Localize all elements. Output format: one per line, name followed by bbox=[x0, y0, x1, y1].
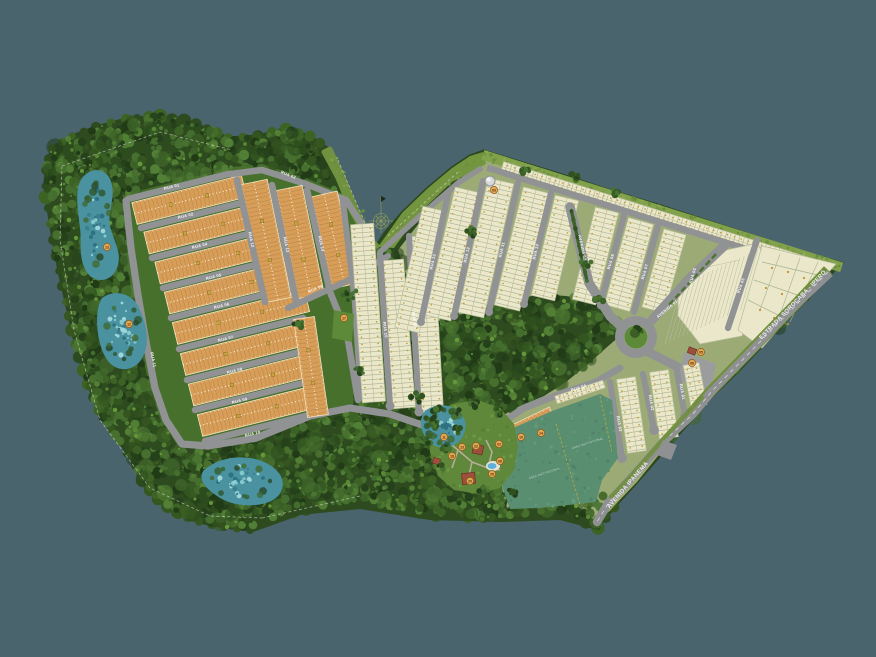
svg-text:18: 18 bbox=[450, 454, 454, 458]
svg-text:11: 11 bbox=[442, 435, 446, 439]
svg-text:20: 20 bbox=[468, 479, 472, 483]
svg-text:10: 10 bbox=[519, 435, 523, 439]
svg-text:13: 13 bbox=[460, 445, 464, 449]
svg-text:13: 13 bbox=[105, 245, 109, 249]
svg-text:14: 14 bbox=[539, 431, 543, 435]
svg-text:08: 08 bbox=[690, 361, 694, 365]
svg-text:08: 08 bbox=[498, 459, 502, 463]
svg-text:25: 25 bbox=[490, 472, 494, 476]
svg-text:12: 12 bbox=[127, 322, 131, 326]
svg-text:03: 03 bbox=[492, 188, 496, 192]
svg-text:05: 05 bbox=[699, 350, 703, 354]
svg-text:02: 02 bbox=[497, 442, 501, 446]
svg-text:22: 22 bbox=[474, 444, 478, 448]
svg-text:17: 17 bbox=[342, 316, 346, 320]
